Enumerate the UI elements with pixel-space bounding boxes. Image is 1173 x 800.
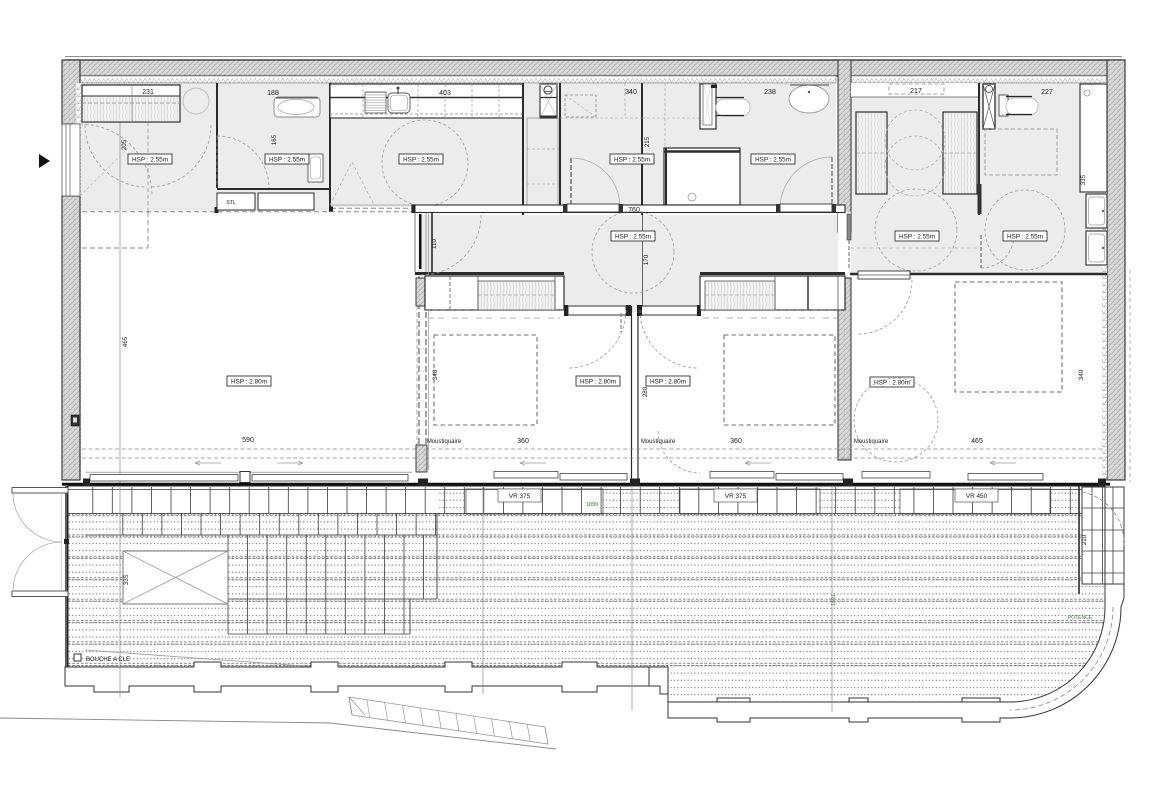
svg-text:403: 403 [439,90,451,97]
svg-text:238: 238 [764,89,776,96]
svg-text:205: 205 [121,139,128,150]
svg-text:215: 215 [644,136,651,147]
svg-text:110: 110 [431,239,438,249]
svg-text:340: 340 [432,369,439,380]
svg-text:HSP : 2.80m: HSP : 2.80m [231,379,267,386]
svg-text:231: 231 [142,89,154,96]
svg-text:HSP : 2.55m: HSP : 2.55m [403,157,439,164]
svg-text:335: 335 [1080,174,1087,185]
svg-text:760: 760 [628,207,640,214]
svg-text:VR 375: VR 375 [725,493,747,500]
svg-text:340: 340 [625,89,637,96]
svg-text:HSP : 2.55m: HSP : 2.55m [615,234,651,241]
svg-text:HSP : 2.80m: HSP : 2.80m [580,379,616,386]
svg-text:Moustiquaire: Moustiquaire [427,439,462,445]
svg-text:465: 465 [971,438,983,445]
svg-text:STL: STL [226,200,235,206]
svg-text:HSP : 2.55m: HSP : 2.55m [269,157,305,164]
svg-text:VR 450: VR 450 [966,493,988,500]
svg-text:HSP : 2.80m: HSP : 2.80m [650,379,686,386]
svg-text:HSP : 2.80m: HSP : 2.80m [874,380,910,387]
svg-text:360: 360 [517,438,529,445]
svg-text:340: 340 [1078,369,1085,380]
svg-text:POTENCE: POTENCE [1068,615,1093,621]
svg-text:335: 335 [123,574,130,585]
svg-text:HSP : 2.55m: HSP : 2.55m [132,157,168,164]
svg-text:HSP : 2.55m: HSP : 2.55m [755,157,791,164]
svg-text:VR 375: VR 375 [509,493,531,500]
svg-text:170: 170 [643,254,650,265]
svg-text:217: 217 [910,88,922,95]
svg-text:Moustiquaire: Moustiquaire [641,439,676,445]
svg-text:HSP : 2.55m: HSP : 2.55m [899,234,935,241]
svg-text:465: 465 [122,336,129,347]
svg-text:590: 590 [242,437,254,444]
svg-text:BOUCHE A CLE: BOUCHE A CLE [86,657,130,663]
svg-text:HSP : 2.55m: HSP : 2.55m [1007,234,1043,241]
svg-text:165: 165 [271,134,278,145]
svg-text:Moustiquaire: Moustiquaire [854,439,889,445]
svg-text:1899: 1899 [586,502,598,508]
svg-text:188: 188 [267,90,279,97]
svg-text:280: 280 [642,386,649,397]
svg-text:HSP : 2.55m: HSP : 2.55m [614,157,650,164]
svg-text:227: 227 [1041,89,1053,96]
svg-text:360: 360 [730,438,742,445]
svg-text:210: 210 [1081,534,1088,545]
